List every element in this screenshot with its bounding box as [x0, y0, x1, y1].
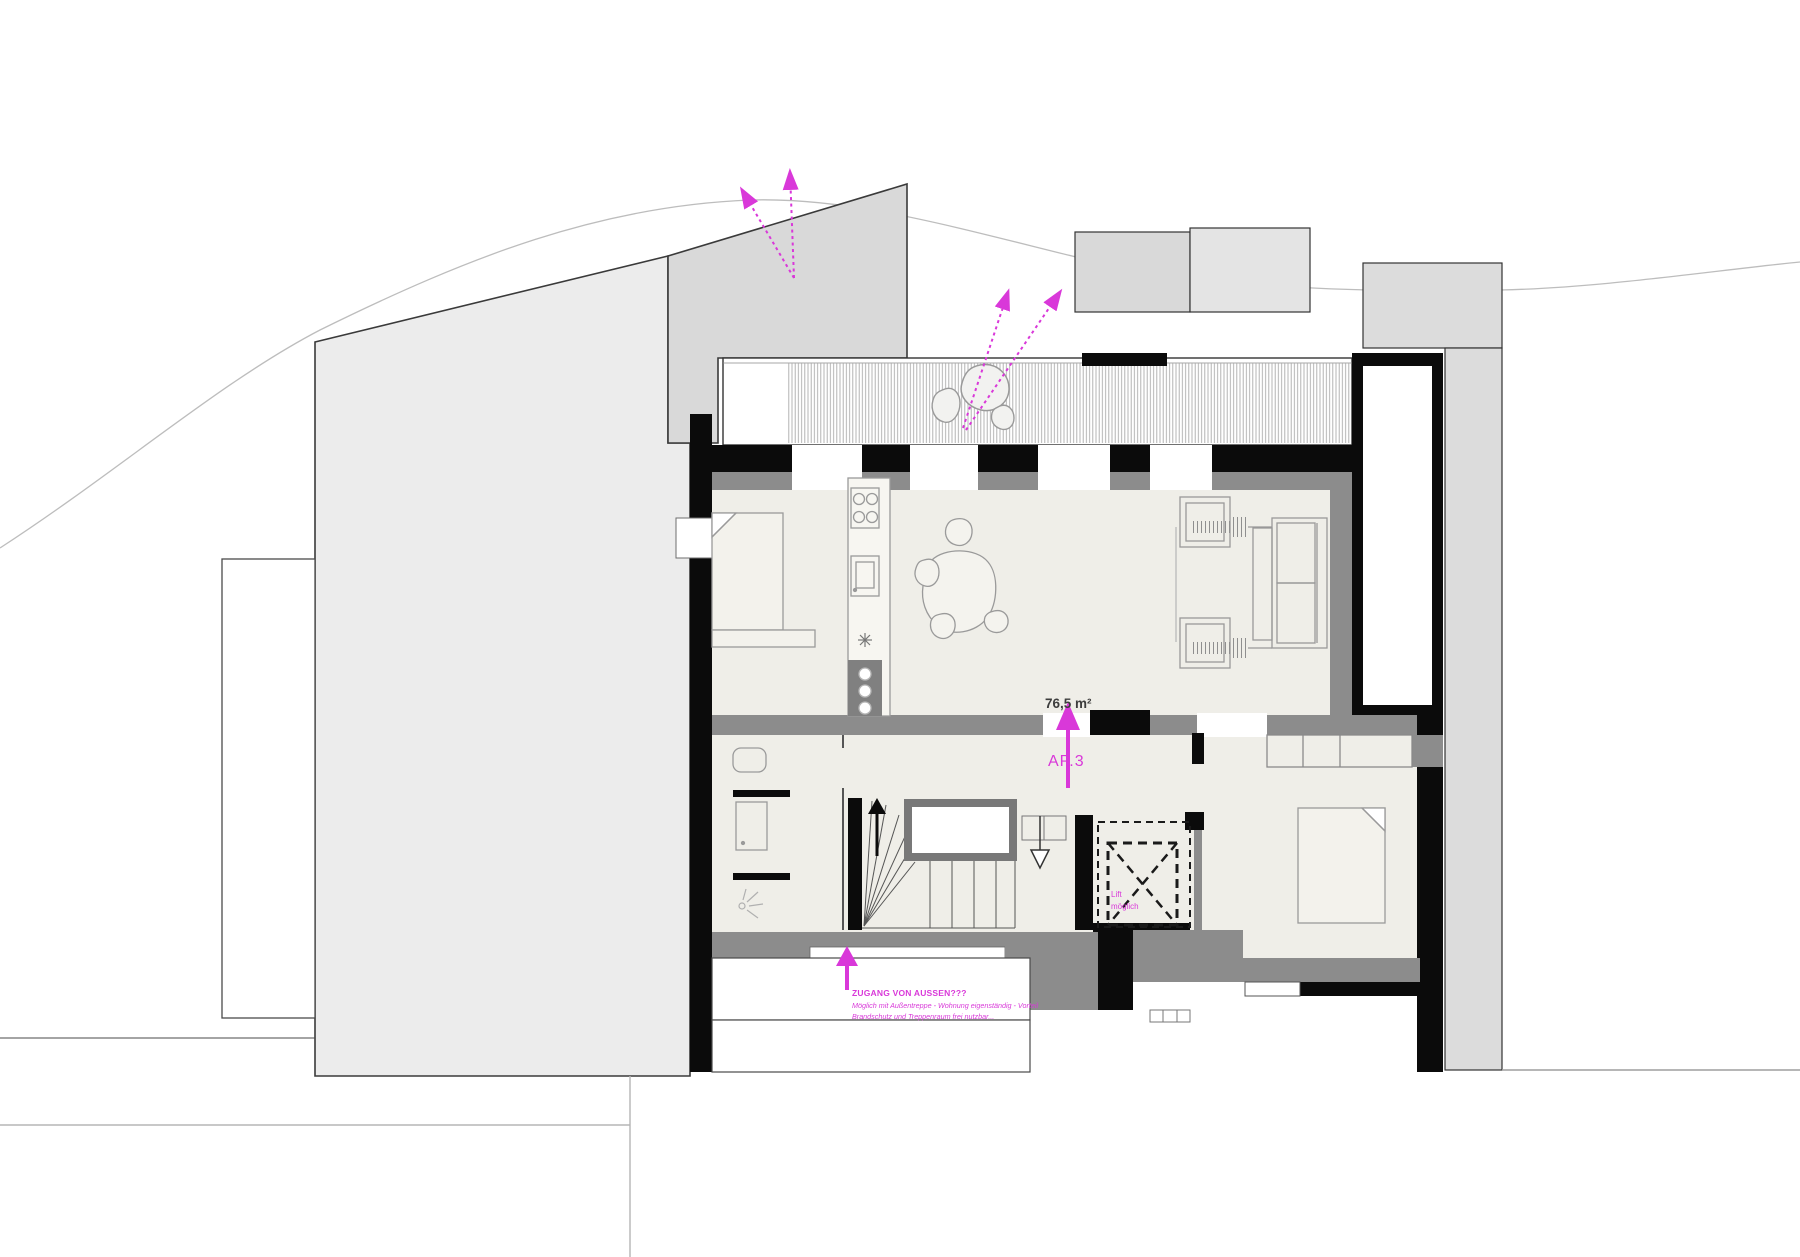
entry-platform — [810, 947, 1005, 958]
window-top-4 — [1150, 445, 1212, 490]
wall-bottom-black-1 — [1098, 930, 1133, 1010]
floor-plan-drawing: 76,5 m² AP.3 Lift möglich ZUGANG VON AUS… — [0, 0, 1800, 1257]
wall-mid-black — [1090, 710, 1150, 735]
window-top-2 — [910, 445, 978, 490]
entry-note-title: ZUGANG VON AUSSEN??? — [852, 988, 967, 998]
shaft-wall-top — [1352, 353, 1443, 366]
kitchen-icon — [848, 478, 890, 716]
chair-icon — [915, 559, 939, 586]
kitchen-asterisk-icon — [858, 633, 872, 647]
wall-hall-bedroom2-stub — [1192, 733, 1204, 764]
terrace — [723, 353, 1352, 445]
neighbor-band-upper — [1363, 263, 1502, 348]
chair-icon — [945, 519, 972, 546]
terrace-decking-hatch — [788, 363, 1350, 443]
neighbor-block-a — [1075, 232, 1190, 312]
neighbor-annex-outline — [222, 559, 315, 1018]
entry-note-line3: Brandschutz und Treppenraum frei nutzbar… — [852, 1012, 994, 1021]
wall-bottom-gray-5 — [1243, 958, 1420, 982]
chair-icon — [930, 614, 955, 639]
entry-strip-lower — [712, 1020, 1030, 1072]
stair-landing — [908, 803, 1013, 857]
wall-living-right — [1330, 477, 1352, 718]
window-left — [676, 518, 712, 558]
shaft-void — [1363, 366, 1432, 705]
wall-mid-1 — [712, 715, 1043, 735]
terrace-stone-small-right — [991, 405, 1014, 429]
exterior-steps — [1150, 1010, 1190, 1022]
bedroom2-floor-extension — [1243, 930, 1417, 960]
shaft-wall-left — [1352, 353, 1363, 718]
neighbor-band-right — [1445, 348, 1502, 1070]
entry-note-line2: Möglich mit Außentreppe - Wohnung eigens… — [852, 1001, 1038, 1010]
apartment-label: AP.3 — [1048, 753, 1085, 770]
wall-bottom-gray-2 — [1005, 932, 1098, 958]
wall-stairs-left — [848, 798, 862, 930]
wall-left-outer — [690, 414, 712, 1072]
floor-plan-canvas: 76,5 m² AP.3 Lift möglich ZUGANG VON AUS… — [0, 0, 1800, 1257]
wardrobe-icon — [1267, 735, 1412, 767]
wall-mid-2 — [1150, 715, 1197, 735]
window-right-sill — [1409, 735, 1443, 767]
area-label: 76,5 m² — [1045, 696, 1092, 711]
wall-elevator-left — [1075, 815, 1093, 930]
wall-bottom-gray-3 — [1030, 958, 1098, 1010]
neighbor-building-left — [315, 256, 690, 1076]
shower-wall-top — [733, 790, 790, 797]
neighbor-block-b — [1190, 228, 1310, 312]
terrace-stone-large — [961, 365, 1009, 411]
bed-2-icon — [1298, 808, 1385, 923]
lift-note-line2: möglich — [1111, 902, 1139, 911]
door-gap-bedroom2 — [1197, 713, 1267, 737]
window-bottom-right — [1245, 982, 1300, 996]
lift-note-line1: Lift — [1111, 890, 1122, 899]
wall-bottom-gray-4 — [1133, 930, 1243, 982]
chair-icon — [984, 611, 1008, 633]
wall-mid-3 — [1267, 715, 1417, 735]
wall-bottom-black-2 — [1300, 982, 1420, 996]
terrace-threshold-bar — [1082, 353, 1167, 366]
wall-hall-bedroom2 — [1194, 830, 1202, 930]
terrace-stone-small-left — [932, 388, 960, 422]
window-top-3 — [1038, 445, 1110, 490]
wall-top-outer — [690, 445, 1352, 472]
shaft-wall-right — [1432, 353, 1443, 718]
shower-wall-bottom — [733, 873, 790, 880]
